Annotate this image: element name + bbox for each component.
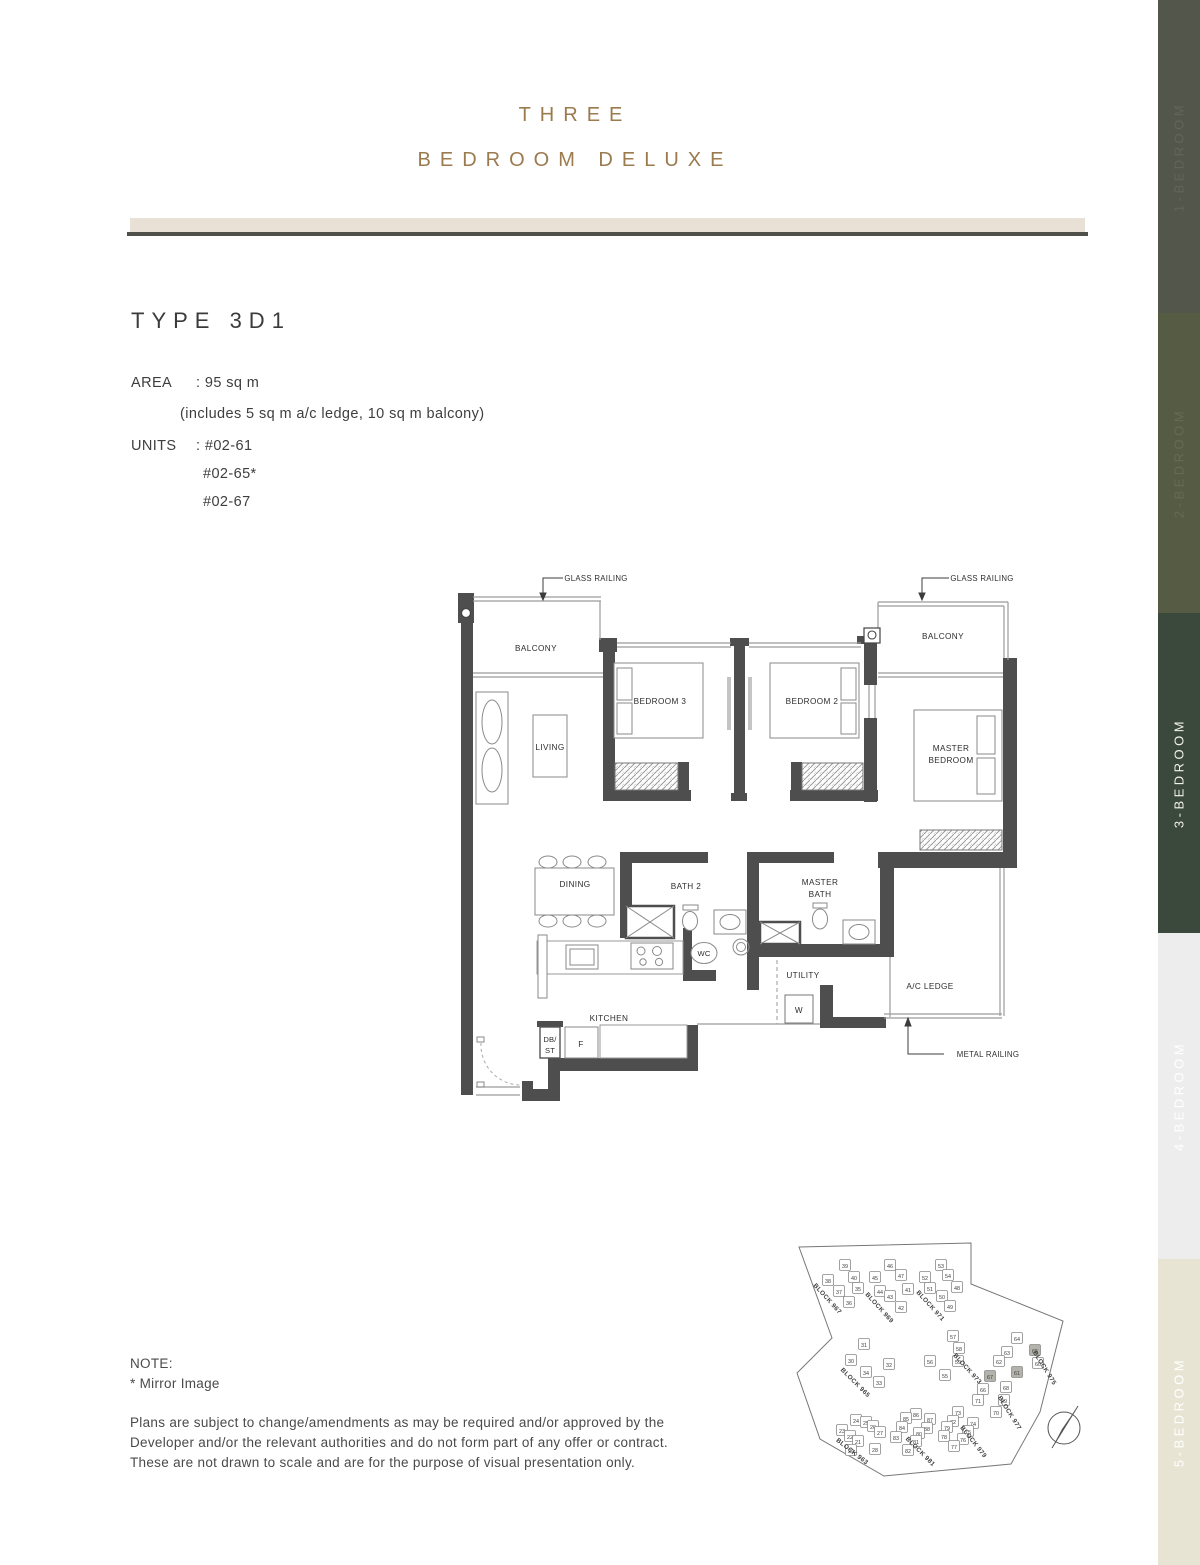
- site-unit-number: 77: [951, 1445, 957, 1451]
- units-value-1: : #02-61: [196, 438, 252, 454]
- site-unit-number: 40: [851, 1276, 857, 1282]
- compass-icon: [1048, 1406, 1080, 1448]
- site-unit-number: 42: [898, 1306, 904, 1312]
- site-unit-number: 38: [825, 1279, 831, 1285]
- floorplan-drawing: GLASS RAILING GLASS RAILING METAL RAILIN…: [450, 560, 1020, 1120]
- room-label-bedroom2: BEDROOM 2: [786, 697, 839, 706]
- disclaimer-line-1: Plans are subject to change/amendments a…: [130, 1415, 664, 1430]
- area-label: AREA: [131, 375, 172, 391]
- site-unit-number: 45: [872, 1276, 878, 1282]
- units-value-3: #02-67: [203, 494, 251, 510]
- units-label: UNITS: [131, 438, 177, 454]
- site-unit-number: 67: [987, 1375, 993, 1381]
- site-unit-number: 84: [899, 1426, 905, 1432]
- sidebar-tab-2-bedroom[interactable]: 2-BEDROOM: [1158, 313, 1200, 613]
- area-note: (includes 5 sq m a/c ledge, 10 sq m balc…: [180, 406, 485, 422]
- site-unit-number: 31: [861, 1343, 867, 1349]
- site-unit-number: 53: [938, 1264, 944, 1270]
- disclaimer-line-2: Developer and/or the relevant authoritie…: [130, 1435, 668, 1450]
- site-unit-number: 51: [927, 1287, 933, 1293]
- room-label-master-bath-2: BATH: [809, 890, 832, 899]
- site-unit-number: 66: [980, 1388, 986, 1394]
- site-unit-number: 27: [877, 1431, 883, 1437]
- header-band: [130, 218, 1085, 232]
- sidebar-tab-3-bedroom[interactable]: 3-BEDROOM: [1158, 613, 1200, 933]
- note-title: NOTE:: [130, 1356, 173, 1371]
- site-unit-number: 70: [993, 1411, 999, 1417]
- site-unit-number: 24: [853, 1419, 859, 1425]
- room-label-master-bath-1: MASTER: [802, 878, 839, 887]
- site-unit-number: 32: [886, 1363, 892, 1369]
- room-label-living: LIVING: [535, 743, 564, 752]
- units-value-2: #02-65*: [203, 466, 257, 482]
- site-unit-number: 63: [1004, 1351, 1010, 1357]
- sidebar-tab-1-bedroom[interactable]: 1-BEDROOM: [1158, 0, 1200, 313]
- brochure-page: THREE BEDROOM DELUXE TYPE 3D1 AREA : 95 …: [0, 0, 1200, 1565]
- site-unit-number: 36: [846, 1301, 852, 1307]
- site-unit-number: 78: [941, 1435, 947, 1441]
- header-band-rule: [127, 232, 1088, 236]
- site-unit-number: 82: [905, 1449, 911, 1455]
- room-label-kitchen: KITCHEN: [590, 1014, 629, 1023]
- label-db-2: ST: [545, 1046, 555, 1055]
- room-label-master-bedroom-1: MASTER: [933, 744, 970, 753]
- entrance-door-arc: [481, 1043, 520, 1085]
- disclaimer-line-3: These are not drawn to scale and are for…: [130, 1455, 635, 1470]
- site-unit-number: 56: [927, 1360, 933, 1366]
- site-unit-number: 86: [913, 1413, 919, 1419]
- site-unit-number: 48: [954, 1286, 960, 1292]
- site-unit-number: 34: [863, 1371, 869, 1377]
- room-label-wc: WC: [697, 949, 710, 958]
- label-db-1: DB/: [543, 1035, 557, 1044]
- page-title-line1: THREE: [0, 104, 1150, 127]
- room-label-master-bedroom-2: BEDROOM: [928, 756, 973, 765]
- room-label-balcony-left: BALCONY: [515, 644, 557, 653]
- unit-type-title: TYPE 3D1: [131, 308, 291, 334]
- site-plan: 3940383736354647454443414253545251485049…: [780, 1235, 1110, 1520]
- room-label-balcony-right: BALCONY: [922, 632, 964, 641]
- site-unit-number: 33: [876, 1381, 882, 1387]
- site-unit-number: 47: [898, 1274, 904, 1280]
- site-unit-number: 41: [905, 1288, 911, 1294]
- room-label-ac-ledge: A/C LEDGE: [906, 982, 953, 991]
- site-unit-number: 46: [887, 1264, 893, 1270]
- site-unit-number: 49: [947, 1305, 953, 1311]
- site-unit-number: 83: [893, 1436, 899, 1442]
- label-washer: W: [795, 1006, 803, 1015]
- sidebar-tab-4-bedroom-label: 4-BEDROOM: [1172, 1041, 1187, 1151]
- sidebar-tab-4-bedroom[interactable]: 4-BEDROOM: [1158, 933, 1200, 1259]
- site-unit-number: 50: [939, 1295, 945, 1301]
- site-unit-number: 68: [1003, 1386, 1009, 1392]
- area-value: : 95 sq m: [196, 375, 259, 391]
- glass-railing-left-label: GLASS RAILING: [564, 574, 627, 583]
- sidebar-tab-3-bedroom-label: 3-BEDROOM: [1172, 718, 1187, 828]
- site-unit-number: 88: [924, 1427, 930, 1433]
- site-plan-units: 3940383736354647454443414253545251485049…: [812, 1260, 1058, 1469]
- label-fridge: F: [578, 1040, 583, 1049]
- room-label-utility: UTILITY: [786, 971, 819, 980]
- site-unit-number: 37: [836, 1290, 842, 1296]
- site-unit-number: 57: [950, 1335, 956, 1341]
- site-unit-number: 43: [887, 1295, 893, 1301]
- column-markers: [462, 609, 881, 644]
- site-block-label: BLOCK 973: [952, 1352, 983, 1386]
- site-unit-number: 62: [996, 1360, 1002, 1366]
- room-label-bedroom3: BEDROOM 3: [634, 697, 687, 706]
- sidebar-tab-5-bedroom-label: 5-BEDROOM: [1172, 1357, 1187, 1467]
- sidebar-tab-1-bedroom-label: 1-BEDROOM: [1172, 101, 1187, 211]
- site-unit-number: 76: [960, 1438, 966, 1444]
- sidebar-tab-2-bedroom-label: 2-BEDROOM: [1172, 408, 1187, 518]
- site-unit-number: 28: [872, 1448, 878, 1454]
- metal-railing-label: METAL RAILING: [957, 1050, 1019, 1059]
- glass-railing-right-label: GLASS RAILING: [950, 574, 1013, 583]
- site-unit-number: 44: [877, 1290, 883, 1296]
- site-unit-number: 30: [848, 1359, 854, 1365]
- note-mirror-image: * Mirror Image: [130, 1376, 220, 1391]
- site-unit-number: 55: [942, 1374, 948, 1380]
- site-unit-number: 52: [922, 1276, 928, 1282]
- site-unit-number: 39: [842, 1264, 848, 1270]
- sidebar-tab-5-bedroom[interactable]: 5-BEDROOM: [1158, 1259, 1200, 1565]
- site-unit-number: 61: [1014, 1371, 1020, 1377]
- room-label-bath2: BATH 2: [671, 882, 702, 891]
- site-unit-number: 54: [945, 1274, 951, 1280]
- site-unit-number: 64: [1014, 1337, 1020, 1343]
- room-label-dining: DINING: [559, 880, 590, 889]
- site-unit-number: 35: [855, 1287, 861, 1293]
- site-unit-number: 71: [975, 1399, 981, 1405]
- page-title-line2: BEDROOM DELUXE: [0, 149, 1150, 172]
